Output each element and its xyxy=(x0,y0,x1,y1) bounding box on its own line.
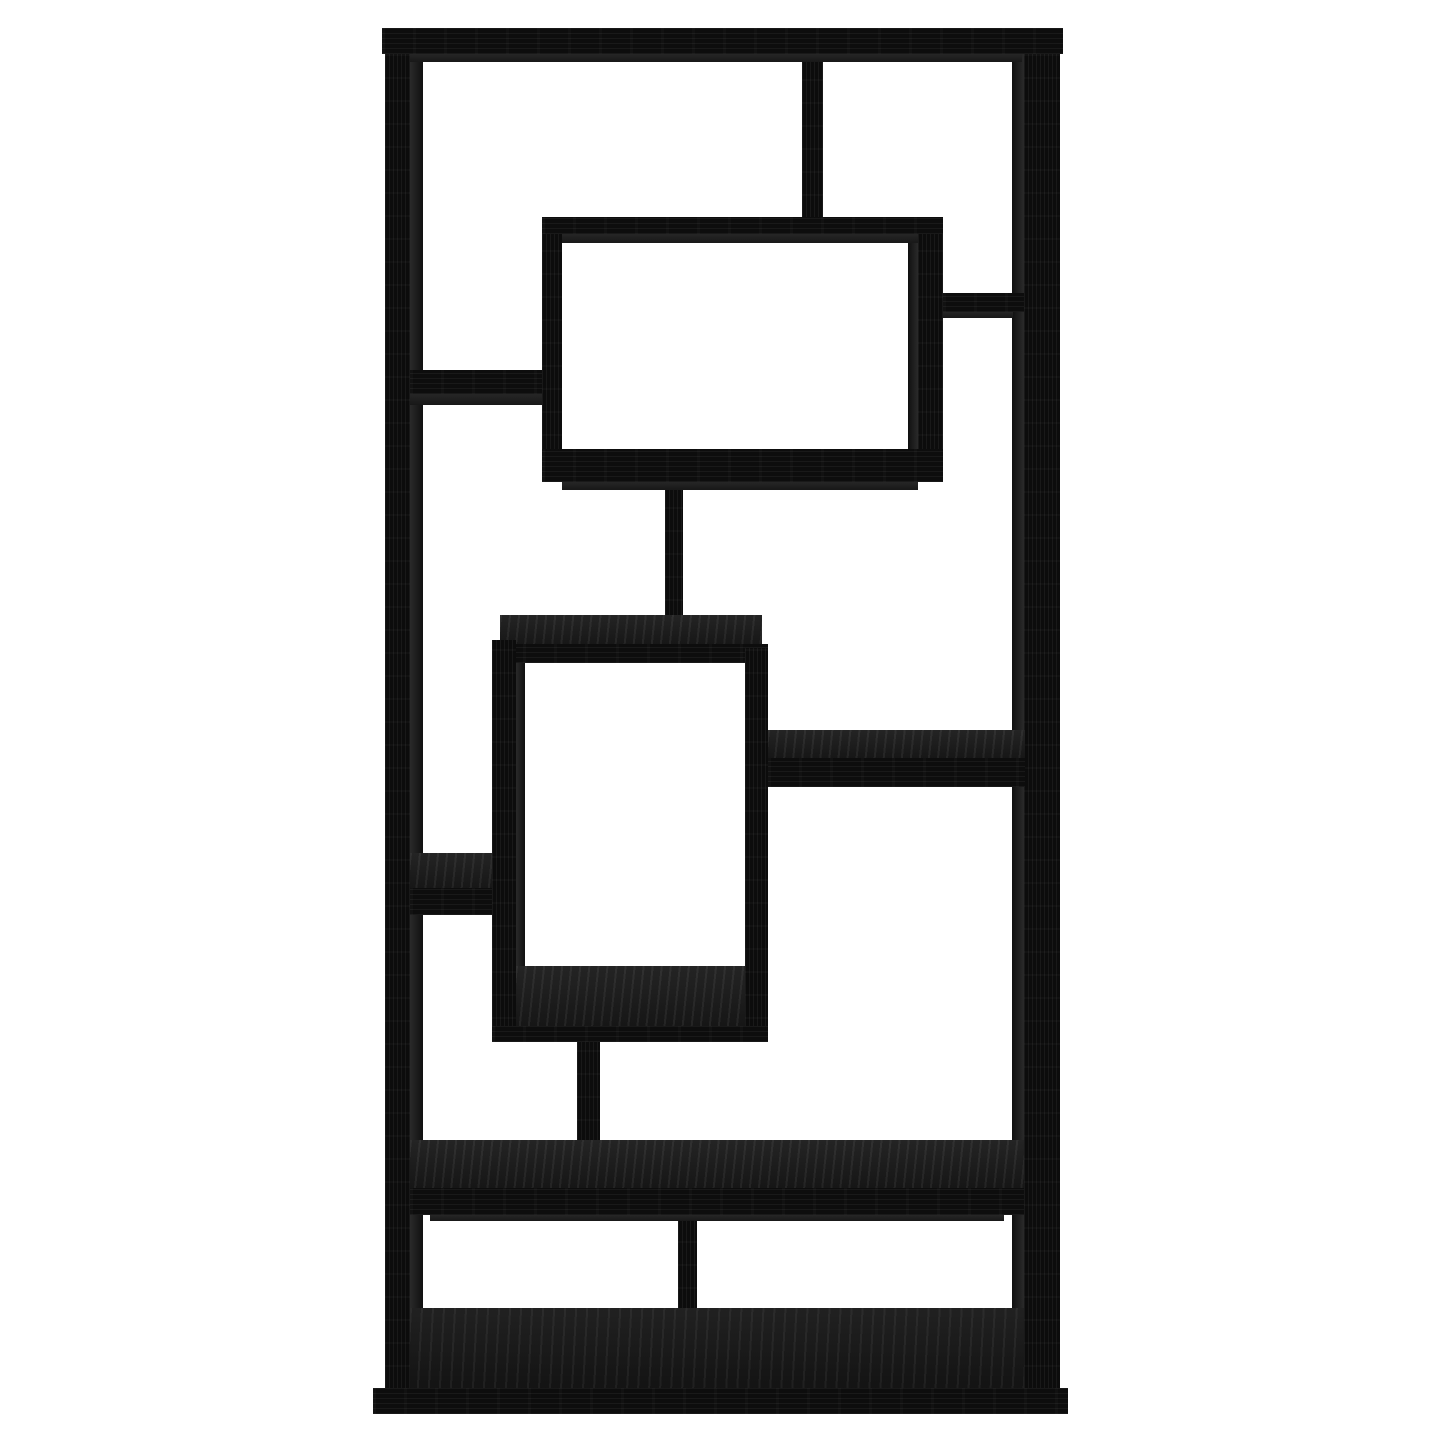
center-cube-top-front xyxy=(492,644,768,663)
center-cube-right-panel xyxy=(745,648,768,1042)
base-plinth xyxy=(373,1388,1068,1414)
base-floor-surface xyxy=(410,1308,1024,1390)
center-cube-left-inner xyxy=(516,663,525,1008)
upper-cube-left-panel xyxy=(542,217,562,482)
left-post-inner-face xyxy=(410,54,423,1308)
big-shelf-front xyxy=(410,1188,1024,1215)
right-mid-shelf-surface xyxy=(768,730,1025,761)
lower-divider xyxy=(577,1038,600,1144)
upper-cube-bottom-shadow xyxy=(562,482,918,490)
upper-right-shelf xyxy=(943,293,1024,312)
bookcase-product-photo xyxy=(0,0,1445,1445)
left-low-shelf-surface xyxy=(410,853,492,892)
left-post xyxy=(385,28,410,1390)
center-cube-floor-surface xyxy=(516,966,745,1030)
top-bar-shadow xyxy=(410,54,1022,62)
right-post xyxy=(1024,28,1060,1390)
upper-cube-top-panel xyxy=(542,217,943,234)
mid-divider xyxy=(665,472,683,624)
upper-left-shelf-shadow xyxy=(410,394,542,405)
bottom-divider xyxy=(678,1212,697,1312)
top-divider xyxy=(802,53,823,219)
upper-cube-right-panel xyxy=(918,217,943,482)
upper-right-shelf-shadow xyxy=(943,312,1013,318)
right-post-inner-face xyxy=(1012,54,1024,1308)
big-shelf-shadow xyxy=(430,1215,1004,1221)
upper-left-shelf xyxy=(410,370,542,394)
center-cube-left-panel xyxy=(492,640,516,1042)
center-cube-bottom-front xyxy=(492,1026,768,1042)
geometric-bookcase xyxy=(0,0,1445,1445)
upper-cube-top-shadow xyxy=(562,234,918,243)
top-bar xyxy=(382,28,1063,54)
right-mid-shelf-front xyxy=(768,758,1025,787)
big-shelf-surface xyxy=(410,1140,1024,1191)
left-low-shelf-front xyxy=(410,888,492,915)
upper-cube-bottom-panel xyxy=(542,449,943,482)
upper-cube-right-inner xyxy=(908,243,918,449)
